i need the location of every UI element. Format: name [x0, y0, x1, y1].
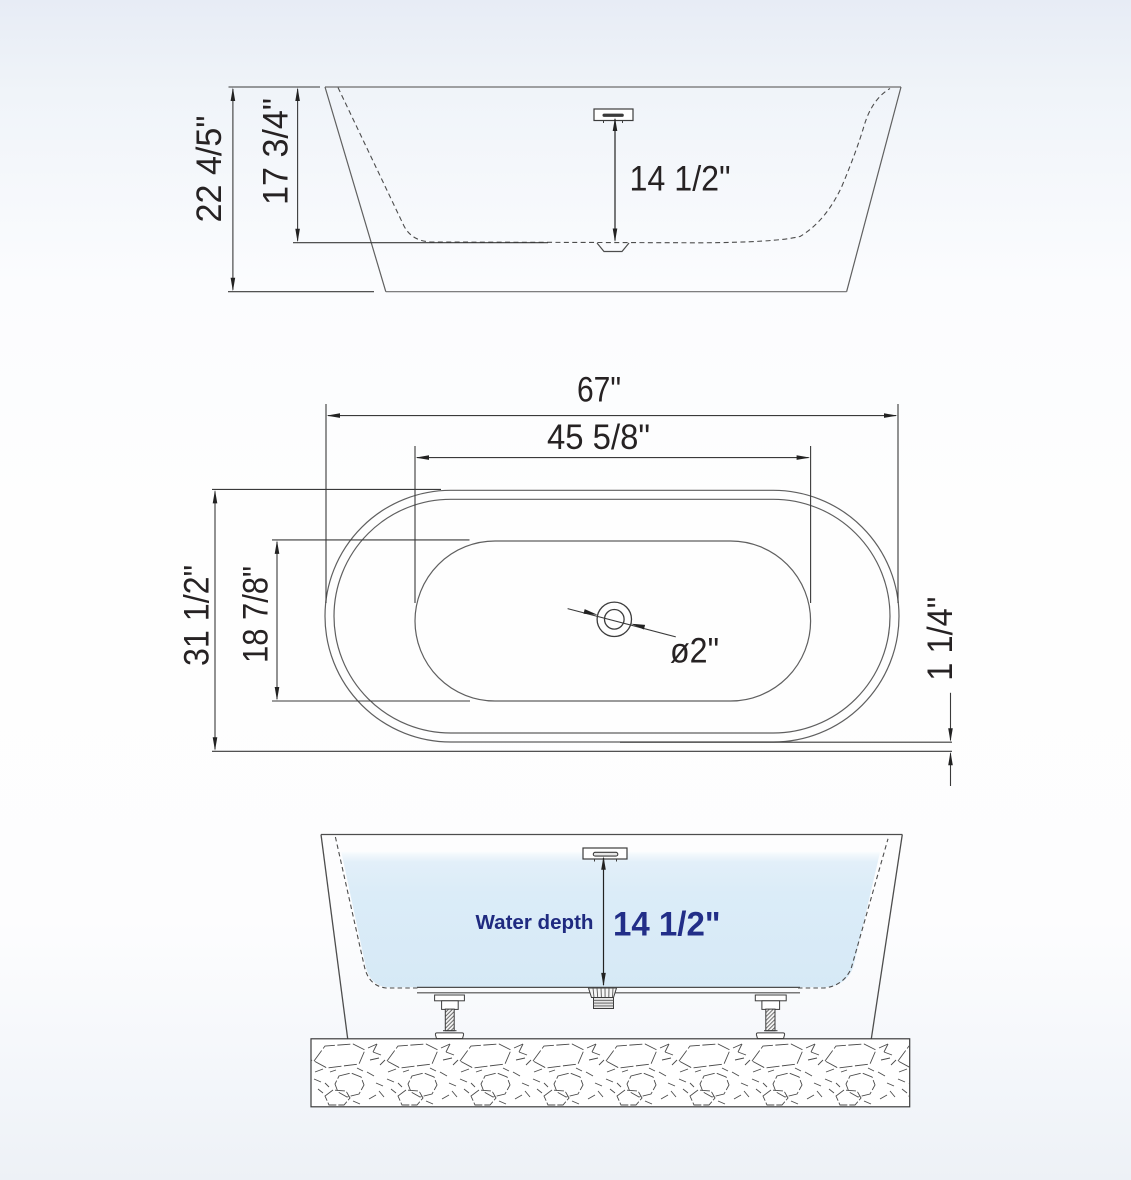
svg-text:ø2": ø2" [670, 632, 719, 671]
svg-text:18 7/8": 18 7/8" [237, 566, 276, 663]
svg-text:14 1/2": 14 1/2" [630, 160, 731, 199]
svg-text:45 5/8": 45 5/8" [547, 418, 650, 457]
svg-text:22 4/5": 22 4/5" [190, 116, 229, 223]
svg-text:17 3/4": 17 3/4" [257, 98, 296, 205]
svg-text:Water depth: Water depth [476, 912, 594, 934]
svg-text:31 1/2": 31 1/2" [178, 565, 217, 666]
svg-text:14 1/2": 14 1/2" [613, 905, 721, 943]
svg-text:1 1/4": 1 1/4" [921, 597, 960, 681]
svg-text:67": 67" [577, 370, 621, 409]
